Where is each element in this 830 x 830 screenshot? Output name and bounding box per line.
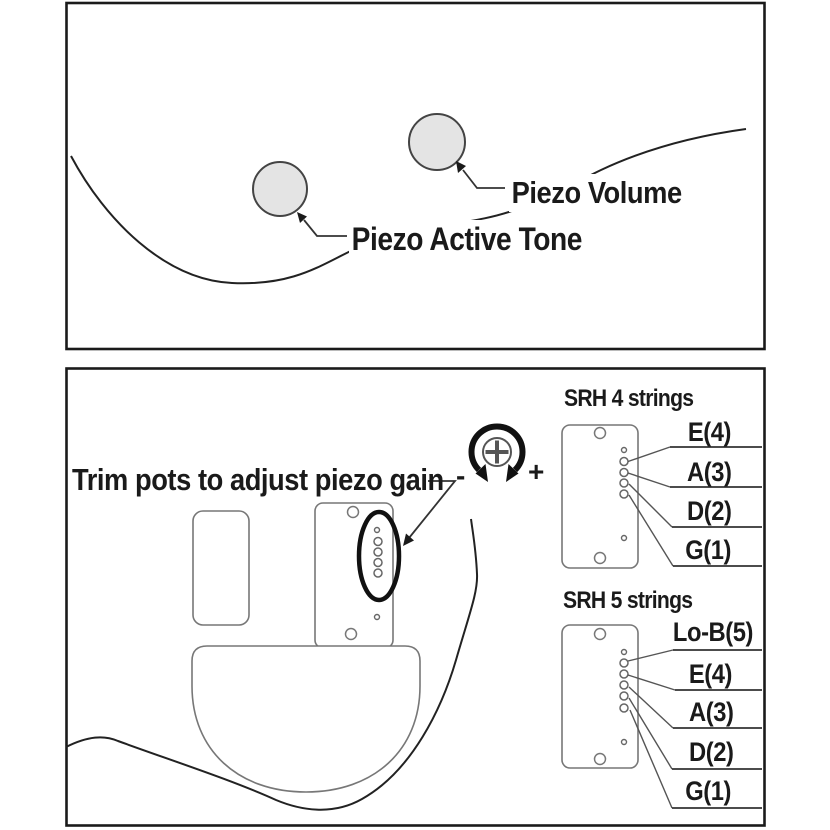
bridge-screw-hole-top [348, 507, 359, 518]
srh5-string-label-d2: D(2) [689, 737, 733, 768]
srh5-string-label-lob5: Lo-B(5) [673, 617, 753, 648]
trim-pot-pilot [375, 528, 380, 533]
bridge-screw-hole-bottom [346, 629, 357, 640]
rotate-plus-label: + [528, 456, 544, 488]
trim-pot-3 [374, 559, 382, 567]
bridge-pilot-hole [375, 615, 380, 620]
trim-pot-1 [374, 538, 382, 546]
srh4-string-label-d2: D(2) [687, 496, 731, 527]
trim-note-label: Trim pots to adjust piezo gain [72, 462, 444, 498]
srh4-string-label-e4: E(4) [688, 417, 731, 448]
piezo-active-tone-knob [253, 162, 307, 216]
srh4-title: SRH 4 strings [564, 385, 693, 413]
battery-compartment [193, 511, 249, 625]
trim-pot-2 [374, 548, 382, 556]
trim-pot-4 [374, 569, 382, 577]
manual-diagram-page: Piezo Volume Piezo Active Tone Trim pots… [0, 0, 830, 830]
srh5-string-label-g1: G(1) [685, 776, 731, 807]
srh4-string-label-a3: A(3) [687, 457, 731, 488]
srh5-string-label-e4: E(4) [689, 659, 732, 690]
piezo-active-tone-label: Piezo Active Tone [349, 220, 585, 259]
srh4-string-label-g1: G(1) [685, 535, 731, 566]
rotate-minus-label: - [456, 460, 465, 492]
srh5-title: SRH 5 strings [563, 587, 692, 615]
phillips-screw-icon [483, 438, 511, 466]
srh5-string-label-a3: A(3) [689, 697, 733, 728]
piezo-volume-label: Piezo Volume [509, 174, 684, 212]
